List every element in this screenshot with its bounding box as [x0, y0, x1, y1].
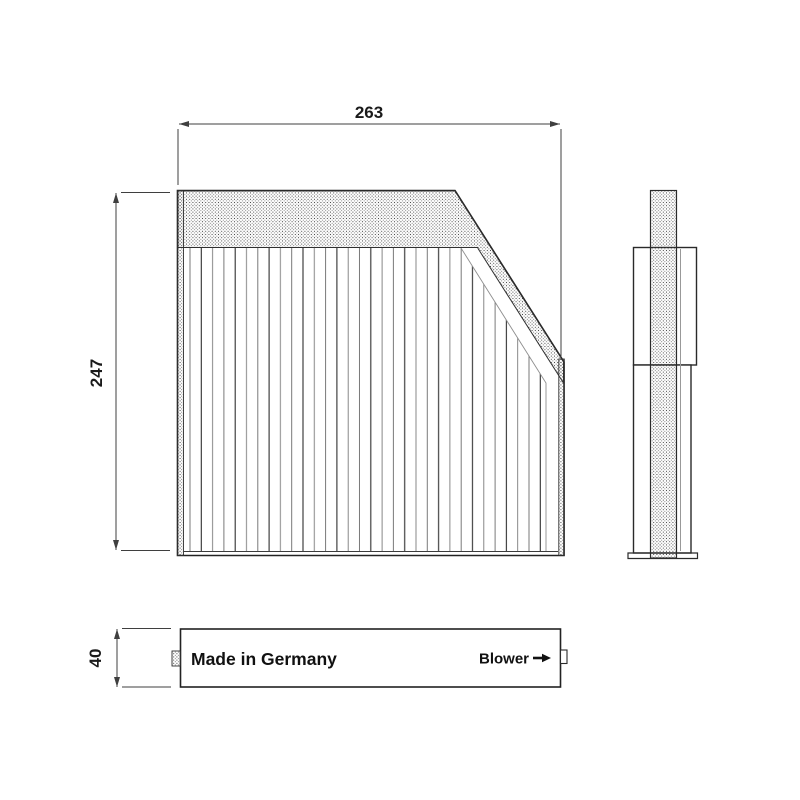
left-mount-tab [172, 651, 181, 666]
bottom-view: Made in Germany Blower [172, 629, 567, 687]
left-seal-edge-hatch [178, 191, 184, 556]
depth-dim-label: 40 [86, 649, 105, 668]
side-filter-media-strip [651, 191, 677, 559]
blower-label: Blower [479, 651, 529, 668]
right-mount-tab [561, 650, 568, 664]
made-in-germany-label: Made in Germany [191, 649, 337, 669]
right-seal-edge-hatch [559, 359, 565, 556]
technical-drawing-canvas: 263 247 Made in Germany Blower [0, 0, 800, 800]
width-dim-label: 263 [355, 103, 383, 122]
height-dim-label: 247 [87, 359, 106, 387]
